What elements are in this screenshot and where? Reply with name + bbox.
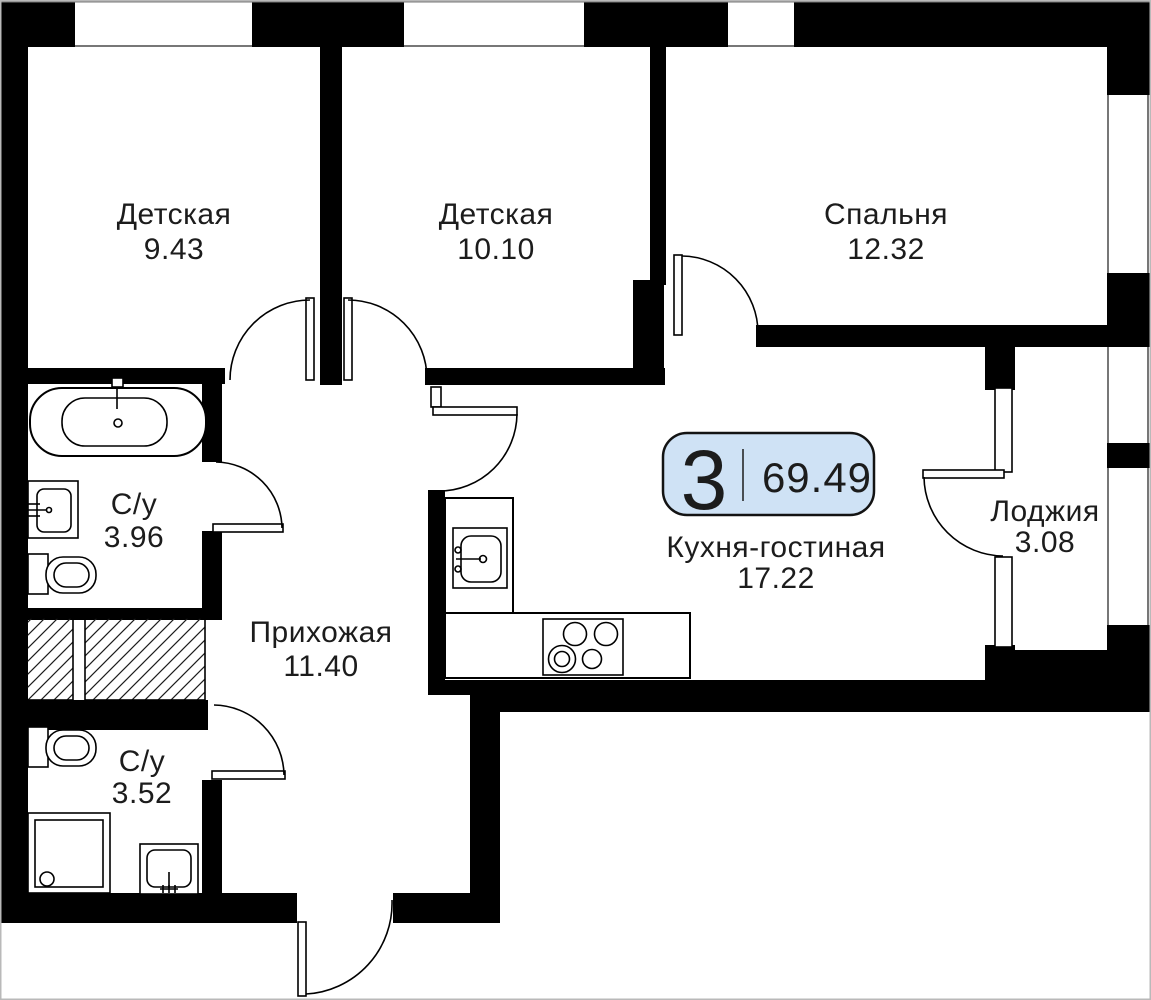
door-arc-kitchen [439,414,517,491]
toilet-bowl-inner [54,736,89,760]
room-area-bedroom: 12.32 [847,233,925,266]
door-leaf-kitchen [433,407,517,415]
wall-segment [428,490,445,682]
door-leaf-nursery2 [344,298,352,380]
badge-rooms-count: 3 [681,433,728,527]
washbasin-icon [140,844,198,894]
toilet-bowl-inner [54,563,89,587]
toilet-tank [28,727,48,767]
room-area-nursery2: 10.10 [457,233,535,266]
floor-plan-canvas: Детская 9.43 Детская 10.10 Спальня 12.32… [0,0,1151,1000]
room-area-bathroom1: 3.96 [104,521,164,554]
toilet-icon [28,554,96,594]
toilet2-icon [28,727,96,767]
stove-icon [543,619,623,675]
door-leaf-bedroom [674,255,682,335]
wall-segment [0,893,297,923]
sink-icon [28,481,78,538]
loggia-glazing-panel [995,388,1012,472]
door-arc-bedroom [682,256,758,333]
wall-segment [470,695,500,917]
door-leaf-entrance [298,922,306,996]
room-area-hallway: 11.40 [283,650,358,683]
room-label-loggia: Лоджия [990,495,1099,528]
room-label-bathroom1: С/у [111,488,158,521]
door-arc-nursery1 [230,300,310,380]
shower-inner [35,820,103,887]
wall-segment [320,47,342,385]
door-arc-nursery2 [348,300,427,379]
wall-segment [470,695,1151,712]
room-label-nursery1: Детская [117,198,232,231]
wall-segment [756,325,1151,347]
wall-segment [425,368,665,385]
wardrobe-hatch [27,618,73,700]
door-leaf-loggia [923,470,1004,478]
wall-segment [0,0,75,47]
room-area-loggia: 3.08 [1015,526,1075,559]
wall-segment [1107,443,1151,468]
wall-segment [584,0,728,47]
walls [0,0,1151,923]
door-jamb-kitchen [431,387,441,407]
wardrobe-niches [27,618,205,700]
room-label-bedroom: Спальня [824,198,948,231]
room-label-nursery2: Детская [439,198,554,231]
room-area-bathroom2: 3.52 [112,777,172,810]
windows [0,2,1151,648]
toilet-tank [28,554,48,594]
room-area-nursery1: 9.43 [144,233,204,266]
apartment-floor-plan: Детская 9.43 Детская 10.10 Спальня 12.32… [0,0,1151,1000]
bathtub-faucet [112,378,123,387]
door-arc-bathroom1 [216,462,282,528]
wall-segment [0,47,28,923]
wardrobe-hatch [85,618,205,700]
badge-total-area: 69.49 [762,454,872,501]
room-label-kitchen: Кухня-гостиная [666,531,885,564]
door-leaf-bathroom1 [213,524,283,532]
wall-segment [1107,47,1151,95]
room-label-hallway: Прихожая [249,616,392,649]
wall-segment [794,0,1151,47]
loggia-glazing-panel [995,557,1012,647]
wall-segment [202,780,222,893]
wall-segment [202,531,222,608]
door-arc-entrance [306,900,392,994]
kitchen-sink-icon [453,528,507,588]
bathtub-icon [30,378,206,456]
wall-segment [393,893,500,923]
door-leaf-nursery1 [306,298,314,380]
room-area-kitchen: 17.22 [737,562,815,595]
wall-segment [252,0,404,47]
door-leaf-bathroom2 [212,771,285,779]
shower-icon [28,813,110,893]
wall-segment [650,47,666,285]
apartment-summary-badge: 3 69.49 [663,433,874,527]
room-label-bathroom2: С/у [119,745,166,778]
wall-segment [0,700,208,730]
wall-segment [985,347,1015,390]
wall-segment [633,280,664,372]
door-arc-bathroom2 [214,705,284,775]
wall-segment [428,680,985,695]
